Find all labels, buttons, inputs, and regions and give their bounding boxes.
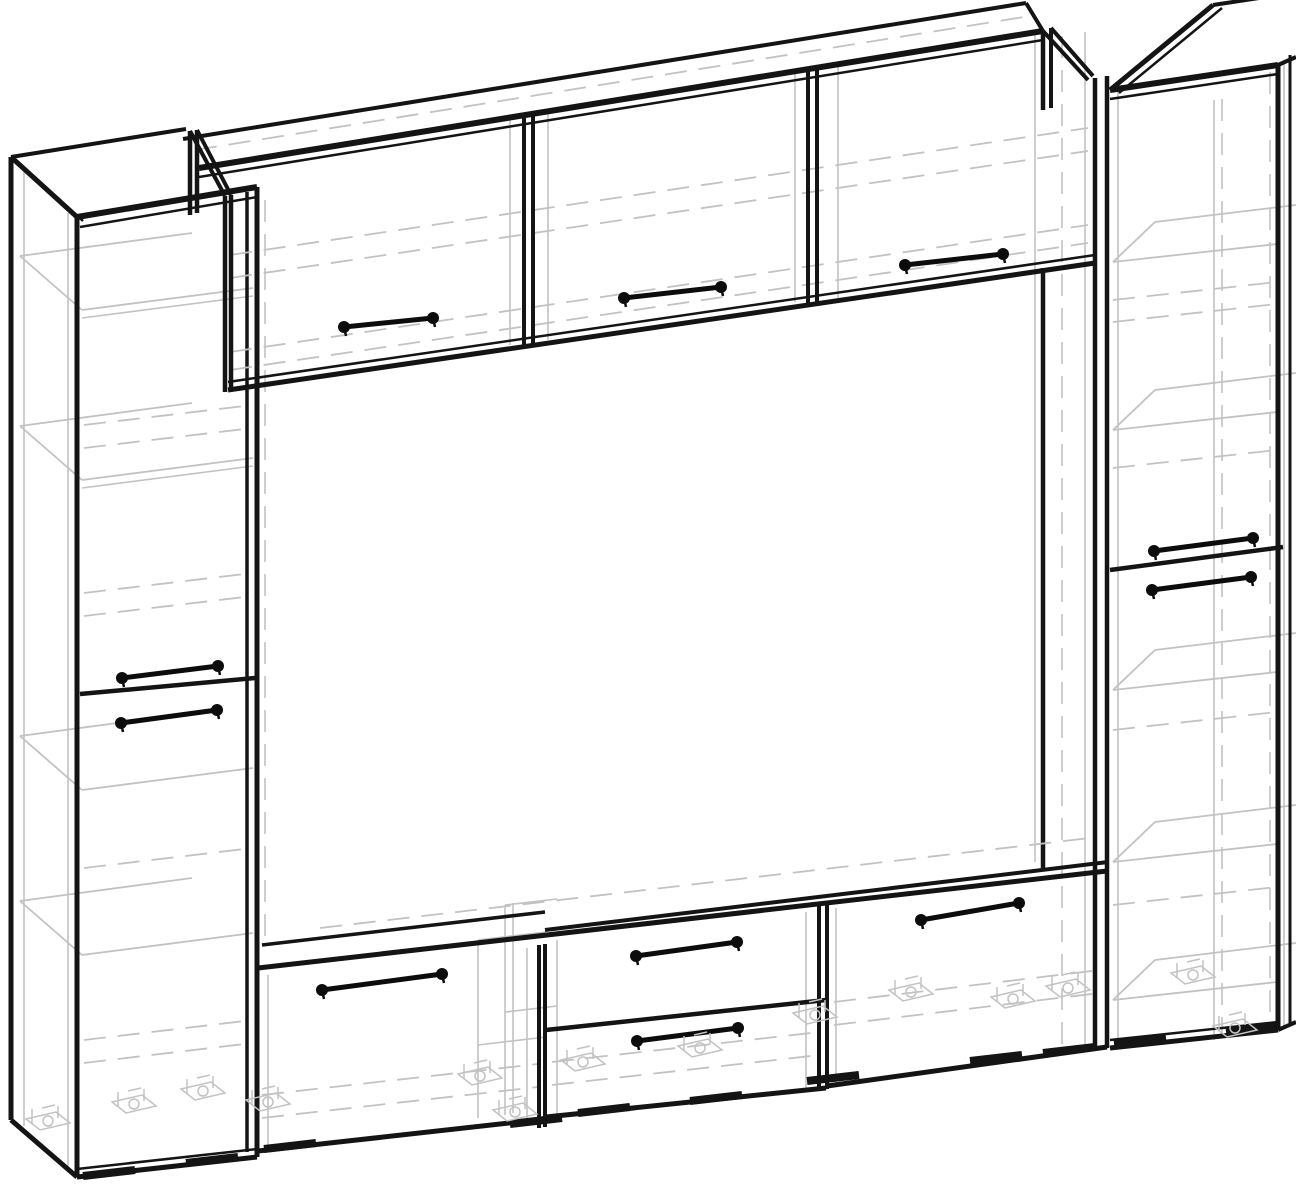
wireframe-canvas: [0, 0, 1296, 1194]
diagram-background: [0, 0, 1296, 1194]
furniture-assembly-diagram: [0, 0, 1296, 1194]
